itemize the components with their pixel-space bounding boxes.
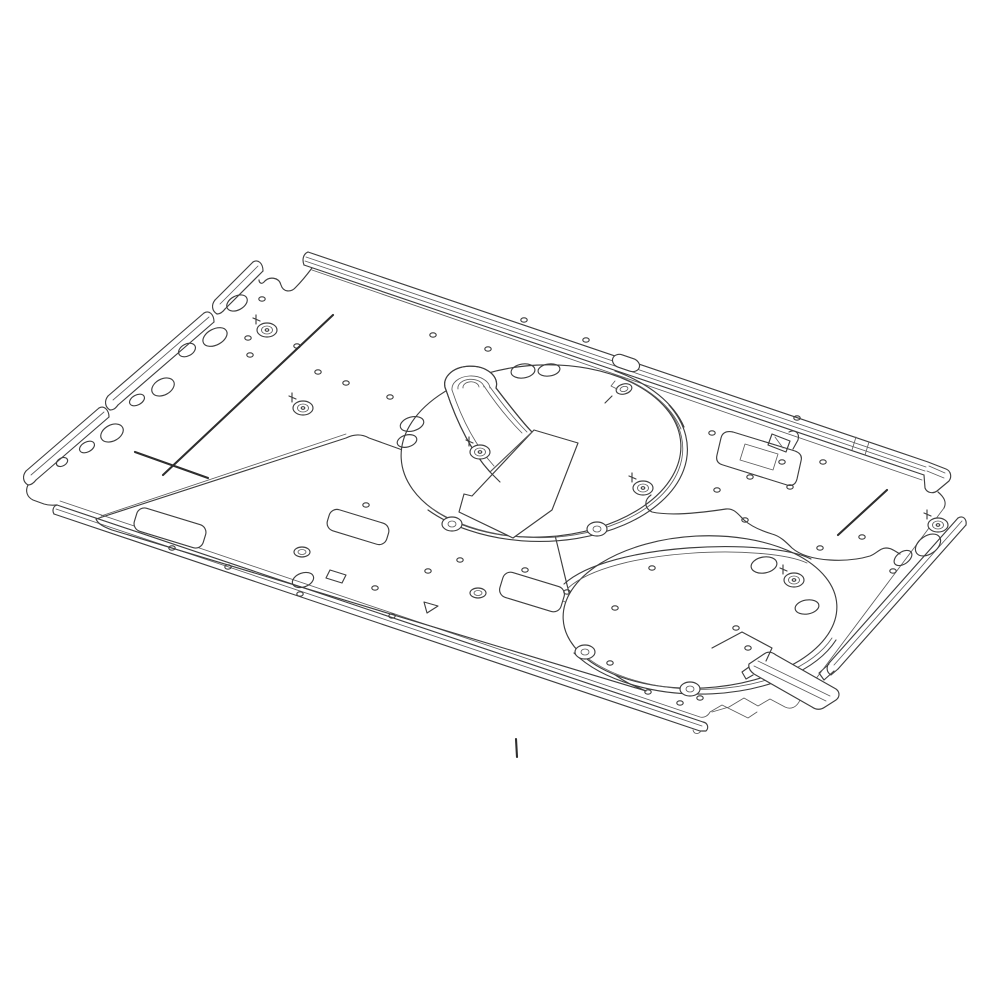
stamped-tab bbox=[498, 570, 567, 614]
oval-hole bbox=[98, 420, 127, 445]
small-hole bbox=[425, 569, 431, 573]
small-hole bbox=[709, 431, 715, 435]
boss-tick bbox=[924, 510, 931, 519]
small-hole bbox=[485, 347, 491, 351]
small-hole bbox=[747, 475, 753, 479]
ring-holes bbox=[294, 547, 486, 598]
small-hole bbox=[297, 592, 303, 596]
boss-tick bbox=[289, 393, 296, 402]
drawing-canvas bbox=[0, 0, 1000, 1000]
mounting-bracket bbox=[717, 431, 802, 485]
small-hole bbox=[714, 488, 720, 492]
small-hole bbox=[245, 336, 251, 340]
left-edge-rail-segments bbox=[24, 261, 312, 505]
boss-outer bbox=[784, 573, 804, 587]
boss-tick bbox=[253, 315, 260, 324]
boss-outer bbox=[470, 445, 490, 459]
ring-hole-inner bbox=[474, 591, 482, 596]
boss-outer bbox=[633, 481, 653, 495]
boss-outer bbox=[293, 401, 313, 415]
rim-tab bbox=[680, 682, 700, 696]
base-panel-technical-drawing bbox=[0, 0, 1000, 1000]
small-hole bbox=[583, 338, 589, 342]
small-hole bbox=[363, 503, 369, 507]
oval-hole bbox=[149, 374, 178, 399]
oval-hole bbox=[911, 530, 944, 561]
small-hole bbox=[247, 353, 253, 357]
small-hole bbox=[677, 701, 683, 705]
rim-tab bbox=[442, 517, 462, 531]
small-hole bbox=[372, 586, 378, 590]
crease-line bbox=[135, 452, 208, 478]
ring-hole-inner bbox=[298, 550, 306, 555]
rim-tab bbox=[575, 645, 595, 659]
boss-outer bbox=[928, 518, 948, 532]
small-hole bbox=[387, 395, 393, 399]
small-hole bbox=[697, 696, 703, 700]
oval-hole bbox=[55, 456, 69, 469]
crease-line bbox=[516, 739, 517, 757]
boss-outer bbox=[257, 323, 277, 337]
small-hole bbox=[890, 569, 896, 573]
small-hole bbox=[430, 333, 436, 337]
small-hole bbox=[522, 568, 528, 572]
left-edge-notch bbox=[259, 268, 312, 291]
small-hole bbox=[343, 381, 349, 385]
rim-tab bbox=[587, 522, 607, 536]
square-hole bbox=[326, 570, 346, 583]
oval-hole bbox=[200, 324, 230, 350]
ring-hole bbox=[294, 547, 310, 557]
oval-hole bbox=[176, 340, 198, 359]
small-hole bbox=[645, 690, 651, 694]
stamped-tab bbox=[325, 507, 391, 546]
small-hole bbox=[315, 370, 321, 374]
bottom-left-corner bbox=[27, 485, 57, 505]
small-hole bbox=[817, 546, 823, 550]
triangle-hole bbox=[424, 602, 438, 613]
ring-hole bbox=[470, 588, 486, 598]
small-hole bbox=[521, 318, 527, 322]
blower-opening-front bbox=[397, 358, 688, 544]
small-hole bbox=[859, 535, 865, 539]
small-hole bbox=[457, 558, 463, 562]
crease-line bbox=[838, 490, 887, 535]
small-hole bbox=[259, 297, 265, 301]
oval-hole bbox=[224, 292, 250, 315]
small-hole bbox=[820, 460, 826, 464]
top-rail-end-cap bbox=[924, 462, 951, 493]
